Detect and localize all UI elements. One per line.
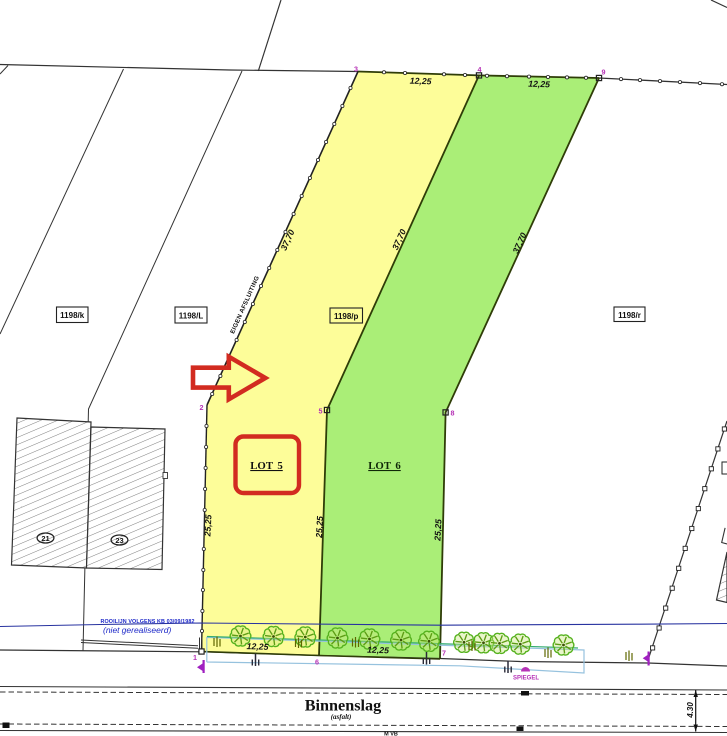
svg-text:9: 9	[602, 68, 606, 77]
svg-text:SPIEGEL: SPIEGEL	[513, 676, 539, 682]
svg-text:21: 21	[41, 534, 49, 543]
svg-text:12,25: 12,25	[410, 76, 432, 87]
svg-text:12,25: 12,25	[528, 79, 550, 90]
svg-text:4.30: 4.30	[686, 702, 695, 719]
svg-text:M VB: M VB	[384, 732, 398, 736]
svg-text:6: 6	[315, 658, 319, 667]
svg-text:(niet gerealiseerd): (niet gerealiseerd)	[103, 625, 171, 635]
svg-text:LOT 6: LOT 6	[368, 460, 401, 472]
svg-text:(asfalt): (asfalt)	[331, 713, 352, 721]
svg-text:LOT 5: LOT 5	[250, 460, 283, 472]
svg-text:1198/r: 1198/r	[618, 311, 641, 320]
svg-text:1198/L: 1198/L	[179, 311, 204, 320]
svg-text:5: 5	[319, 407, 323, 416]
svg-text:23: 23	[115, 536, 123, 545]
svg-text:4: 4	[478, 65, 482, 74]
svg-text:25,25: 25,25	[432, 519, 443, 542]
svg-text:2: 2	[200, 403, 204, 412]
svg-text:7: 7	[442, 649, 446, 658]
svg-text:1198/p: 1198/p	[334, 312, 359, 321]
svg-text:1: 1	[193, 653, 197, 662]
svg-text:12,25: 12,25	[367, 645, 389, 656]
svg-text:25,25: 25,25	[202, 514, 213, 537]
svg-text:25,25: 25,25	[314, 516, 325, 539]
svg-text:3: 3	[354, 65, 358, 74]
svg-text:Binnenslag: Binnenslag	[305, 697, 381, 715]
svg-text:12,25: 12,25	[246, 641, 268, 652]
svg-text:1198/k: 1198/k	[60, 311, 85, 320]
svg-text:8: 8	[451, 409, 455, 418]
